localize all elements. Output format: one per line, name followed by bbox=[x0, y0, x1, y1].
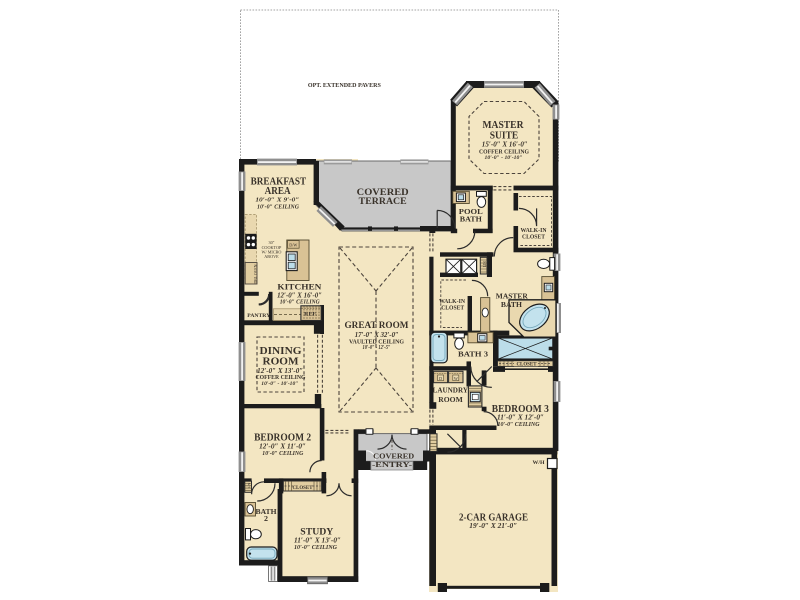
svg-text:W: W bbox=[454, 376, 458, 381]
svg-text:10′-0″ CEILING: 10′-0″ CEILING bbox=[294, 545, 338, 551]
svg-text:CLOSET: CLOSET bbox=[517, 363, 538, 368]
svg-text:D/W: D/W bbox=[289, 242, 297, 247]
svg-text:12′-0″ X 11′-0″: 12′-0″ X 11′-0″ bbox=[259, 443, 306, 450]
svg-text:19′-0″ X 21′-0″: 19′-0″ X 21′-0″ bbox=[469, 522, 517, 530]
svg-text:10′-0″ CEILING: 10′-0″ CEILING bbox=[257, 205, 300, 211]
svg-text:BATH: BATH bbox=[460, 215, 482, 223]
svg-text:CLOSET: CLOSET bbox=[441, 305, 465, 312]
svg-text:LAUNDRY: LAUNDRY bbox=[433, 386, 469, 394]
svg-text:DBL OVEN: DBL OVEN bbox=[254, 264, 258, 283]
svg-text:-ENTRY-: -ENTRY- bbox=[372, 461, 413, 469]
svg-text:10′-0″ CEILING: 10′-0″ CEILING bbox=[498, 422, 541, 428]
svg-text:KITCHEN: KITCHEN bbox=[277, 281, 322, 291]
svg-text:ROOM: ROOM bbox=[438, 396, 463, 404]
svg-text:W/H: W/H bbox=[533, 461, 545, 466]
svg-text:LIN: LIN bbox=[483, 261, 487, 267]
svg-text:LIN: LIN bbox=[247, 482, 251, 488]
svg-text:BEDROOM 3: BEDROOM 3 bbox=[492, 404, 549, 415]
svg-text:11′-0″ X 12′-0″: 11′-0″ X 12′-0″ bbox=[497, 414, 544, 421]
svg-text:10′-0″ X 9′-0″: 10′-0″ X 9′-0″ bbox=[255, 196, 299, 203]
svg-text:10′-0″ CEILING: 10′-0″ CEILING bbox=[262, 451, 304, 457]
svg-text:GREAT ROOM: GREAT ROOM bbox=[345, 320, 409, 331]
svg-text:10′-0″ - 12′-5″: 10′-0″ - 12′-5″ bbox=[363, 345, 391, 351]
svg-text:10′-0″ CEILING: 10′-0″ CEILING bbox=[280, 300, 321, 306]
svg-text:12′-0″ X 16′-0″: 12′-0″ X 16′-0″ bbox=[277, 291, 322, 299]
svg-text:CLOSET: CLOSET bbox=[293, 486, 314, 491]
svg-text:ABOVE: ABOVE bbox=[264, 254, 279, 259]
svg-text:REF.: REF. bbox=[304, 312, 318, 317]
svg-text:D: D bbox=[439, 376, 442, 381]
svg-text:TERRACE: TERRACE bbox=[359, 196, 407, 206]
svg-text:15′-0″ X 16′-0″: 15′-0″ X 16′-0″ bbox=[482, 140, 528, 149]
svg-text:OPT. EXTENDED PAVERS: OPT. EXTENDED PAVERS bbox=[308, 83, 382, 89]
svg-text:CLOSET: CLOSET bbox=[522, 234, 546, 241]
svg-text:2: 2 bbox=[264, 515, 269, 523]
svg-text:11′-0″ X 13′-0″: 11′-0″ X 13′-0″ bbox=[294, 536, 341, 544]
svg-text:DINING: DINING bbox=[260, 346, 302, 357]
svg-text:COVERED: COVERED bbox=[373, 453, 414, 461]
svg-text:BEDROOM 2: BEDROOM 2 bbox=[254, 432, 311, 443]
svg-text:10′-0″ - 10′-10″: 10′-0″ - 10′-10″ bbox=[261, 381, 298, 387]
svg-text:10′-0″ - 10′-10″: 10′-0″ - 10′-10″ bbox=[485, 155, 523, 161]
svg-text:BATH 3: BATH 3 bbox=[458, 351, 488, 359]
svg-text:BATH: BATH bbox=[501, 300, 522, 309]
svg-text:PANTRY: PANTRY bbox=[247, 313, 270, 319]
